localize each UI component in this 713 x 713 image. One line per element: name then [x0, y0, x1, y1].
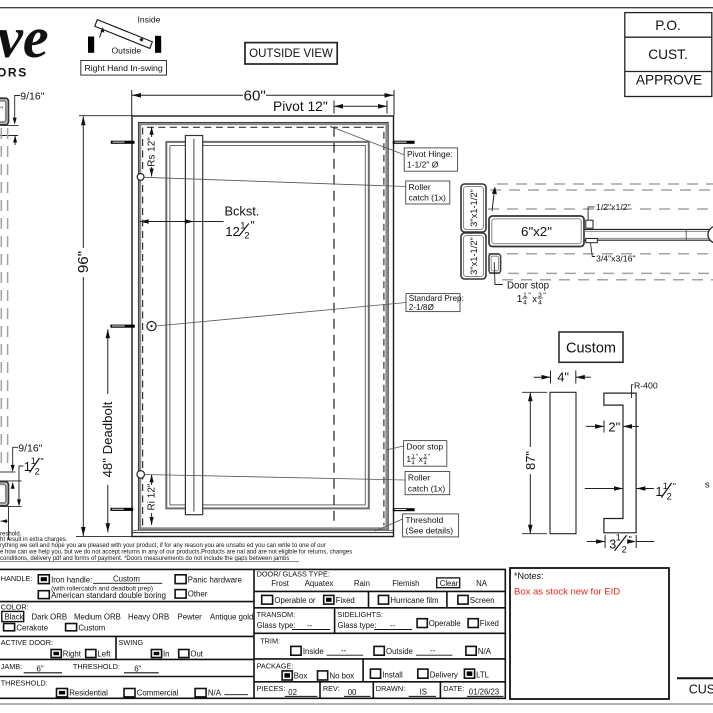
- svg-text:ht result in extra charges.: ht result in extra charges.: [0, 537, 68, 543]
- svg-text:R-400: R-400: [634, 380, 658, 390]
- svg-text:Fixed: Fixed: [336, 596, 355, 605]
- svg-text:DRAWN:: DRAWN:: [376, 684, 405, 693]
- svg-text:00: 00: [348, 688, 357, 697]
- svg-text:Antique gold: Antique gold: [210, 612, 253, 621]
- svg-text:Aquatex: Aquatex: [305, 579, 334, 588]
- svg-text:2: 2: [667, 492, 672, 503]
- svg-text:Hurricane film: Hurricane film: [390, 596, 438, 605]
- svg-text:Out: Out: [190, 650, 203, 659]
- svg-text:Panic hardware: Panic hardware: [188, 575, 242, 584]
- svg-text:catch (1x): catch (1x): [409, 193, 446, 203]
- svg-text:catch (1x): catch (1x): [408, 483, 445, 493]
- svg-text:Operable: Operable: [429, 619, 461, 628]
- svg-text:": ": [251, 219, 255, 233]
- svg-text:9/16": 9/16": [18, 442, 42, 454]
- svg-text:3"x1-1/2": 3"x1-1/2": [469, 189, 479, 227]
- svg-text:NA: NA: [476, 579, 488, 588]
- svg-text:4": 4": [557, 370, 569, 385]
- svg-text:THRESHOLD:: THRESHOLD:: [1, 679, 48, 688]
- svg-text:": ": [41, 457, 44, 467]
- svg-text:4: 4: [412, 460, 415, 466]
- svg-text:Heavy ORB: Heavy ORB: [128, 612, 169, 621]
- svg-text:Rs 12": Rs 12": [147, 137, 158, 167]
- svg-text:Cerakote: Cerakote: [16, 623, 48, 632]
- svg-text:Glass type:: Glass type:: [257, 621, 296, 630]
- svg-text:Outside: Outside: [112, 45, 142, 55]
- svg-text:Operable: Operable: [274, 596, 306, 605]
- svg-text:2: 2: [244, 231, 249, 242]
- svg-text:Ri 12": Ri 12": [147, 483, 158, 510]
- svg-text:LTL: LTL: [476, 670, 490, 679]
- svg-text:9/16": 9/16": [20, 91, 44, 103]
- svg-text:SWING: SWING: [119, 638, 144, 647]
- svg-text:HANDLE:: HANDLE:: [1, 574, 33, 583]
- svg-text:2-1/8Ø: 2-1/8Ø: [409, 303, 435, 312]
- svg-text:*Notes:: *Notes:: [514, 571, 544, 581]
- svg-text:PACKAGE:: PACKAGE:: [257, 661, 294, 670]
- svg-text:Residential: Residential: [69, 689, 108, 698]
- svg-text:12: 12: [225, 224, 240, 239]
- svg-text:TRIM:: TRIM:: [260, 637, 280, 646]
- svg-text:Pivot Hinge:: Pivot Hinge:: [407, 149, 453, 159]
- svg-text:e how can we help you, but we: e how can we help you, but we do not acc…: [0, 549, 352, 555]
- svg-text:REV:: REV:: [323, 684, 340, 693]
- svg-text:x: x: [532, 294, 537, 305]
- svg-text:ACTIVE DOOR:: ACTIVE DOOR:: [1, 638, 53, 647]
- svg-text:rything we sell and hope you a: rything we sell and hope you are pleased…: [0, 543, 326, 549]
- svg-text:N/A: N/A: [478, 647, 492, 656]
- svg-text:ORS: ORS: [0, 66, 28, 80]
- svg-text:Right Hand In-swing: Right Hand In-swing: [84, 63, 162, 73]
- svg-text:DOOR/ GLASS TYPE:: DOOR/ GLASS TYPE:: [257, 569, 330, 578]
- svg-text:Custom: Custom: [78, 623, 105, 632]
- svg-text:Glass type:: Glass type:: [338, 621, 377, 630]
- svg-text:Commercial: Commercial: [137, 689, 179, 698]
- svg-text:Delivery: Delivery: [430, 670, 458, 679]
- svg-text:COLOR:: COLOR:: [1, 603, 29, 612]
- svg-text:SIDELIGHTS:: SIDELIGHTS:: [338, 610, 383, 619]
- svg-text:6"x2": 6"x2": [521, 224, 552, 239]
- svg-text:02: 02: [288, 688, 297, 697]
- svg-text:Right: Right: [63, 650, 82, 659]
- svg-text:CUST.: CUST.: [648, 47, 688, 62]
- svg-text:Rain: Rain: [354, 579, 370, 588]
- svg-text:Custom: Custom: [566, 341, 616, 357]
- svg-text:": ": [543, 291, 546, 300]
- svg-text:Flemish: Flemish: [392, 579, 419, 588]
- svg-text:Threshold: Threshold: [405, 515, 443, 525]
- svg-text:2: 2: [622, 545, 627, 556]
- svg-text:Roller: Roller: [408, 473, 430, 483]
- svg-text:60": 60": [244, 88, 266, 105]
- svg-text:3"x1-1/2": 3"x1-1/2": [469, 237, 479, 275]
- svg-text:Bckst.: Bckst.: [225, 204, 260, 219]
- svg-text:P.O.: P.O.: [655, 18, 681, 33]
- svg-text:87": 87": [523, 451, 538, 470]
- svg-text:48" Deadbolt: 48" Deadbolt: [100, 401, 115, 477]
- svg-text:Frost: Frost: [271, 579, 290, 588]
- svg-text:Box: Box: [294, 671, 308, 680]
- svg-text:": ": [528, 291, 531, 300]
- svg-text:Standard Prep:: Standard Prep:: [409, 294, 464, 303]
- svg-text:Left: Left: [97, 650, 111, 659]
- svg-text:In: In: [163, 650, 170, 659]
- svg-text:2: 2: [35, 467, 40, 478]
- svg-text:4: 4: [523, 300, 527, 307]
- svg-text:Custom: Custom: [113, 574, 140, 583]
- svg-text:American standard double borin: American standard double boring: [51, 591, 166, 600]
- svg-text:Pivot 12": Pivot 12": [273, 99, 328, 114]
- svg-text:Dark ORB: Dark ORB: [32, 612, 68, 621]
- svg-text:Clear: Clear: [440, 579, 459, 588]
- svg-text:Door stop: Door stop: [406, 442, 443, 452]
- svg-text:Iron handle:: Iron handle:: [51, 575, 92, 584]
- svg-text:IS: IS: [420, 688, 427, 697]
- svg-text:": ": [673, 482, 676, 492]
- svg-text:Screen: Screen: [470, 596, 495, 605]
- svg-text:--: --: [307, 621, 313, 630]
- svg-text:": ": [428, 454, 430, 460]
- svg-text:Other: Other: [188, 590, 208, 599]
- svg-text:ive: ive: [0, 5, 49, 70]
- svg-text:1/2"x1/2": 1/2"x1/2": [596, 202, 631, 212]
- svg-text:Black: Black: [5, 612, 24, 621]
- svg-text:6": 6": [134, 664, 141, 673]
- svg-text:THRESHOLD:: THRESHOLD:: [73, 662, 120, 671]
- svg-text:": ": [0, 106, 3, 115]
- svg-text:4: 4: [424, 460, 427, 466]
- svg-text:(See details): (See details): [405, 526, 453, 536]
- svg-text:DATE:: DATE:: [443, 684, 464, 693]
- svg-text:N/A: N/A: [208, 689, 222, 698]
- svg-text:No box: No box: [330, 671, 355, 680]
- svg-text:Pewter: Pewter: [178, 612, 203, 621]
- svg-text:conditions, delivery pdf and f: conditions, delivery pdf and forms of pa…: [0, 556, 290, 562]
- svg-text:96": 96": [75, 251, 92, 273]
- svg-text:TRANSOM:: TRANSOM:: [257, 610, 296, 619]
- svg-text:Install: Install: [382, 670, 403, 679]
- svg-text:OUTSIDE VIEW: OUTSIDE VIEW: [249, 48, 333, 60]
- svg-text:--: --: [390, 621, 396, 630]
- svg-text:or: or: [309, 596, 316, 605]
- svg-text:--: --: [430, 646, 436, 655]
- svg-text:2": 2": [608, 419, 620, 434]
- svg-text:Inside: Inside: [303, 647, 324, 656]
- svg-text:Fixed: Fixed: [480, 619, 499, 628]
- svg-text:": ": [629, 534, 632, 544]
- svg-text:CUS: CUS: [689, 683, 713, 697]
- svg-text:3/4"x3/16": 3/4"x3/16": [596, 253, 636, 263]
- svg-text:JAMB:: JAMB:: [1, 662, 23, 671]
- svg-text:s: s: [705, 480, 710, 490]
- svg-text:PIECES:: PIECES:: [257, 684, 286, 693]
- svg-text:1-1/2" Ø: 1-1/2" Ø: [407, 160, 439, 170]
- svg-text:Inside: Inside: [138, 15, 161, 25]
- svg-text:Medium ORB: Medium ORB: [74, 612, 121, 621]
- svg-text:Roller: Roller: [409, 182, 431, 192]
- svg-text:4: 4: [538, 300, 542, 307]
- svg-text:1: 1: [616, 533, 621, 543]
- svg-text:6": 6": [37, 664, 44, 673]
- svg-text:APPROVE: APPROVE: [636, 73, 702, 88]
- svg-text:1: 1: [517, 293, 523, 305]
- svg-text:Box as stock new for EID: Box as stock new for EID: [514, 587, 620, 598]
- svg-text:--: --: [341, 646, 347, 655]
- svg-text:01/26/23: 01/26/23: [469, 688, 499, 697]
- svg-text:Outside: Outside: [386, 647, 413, 656]
